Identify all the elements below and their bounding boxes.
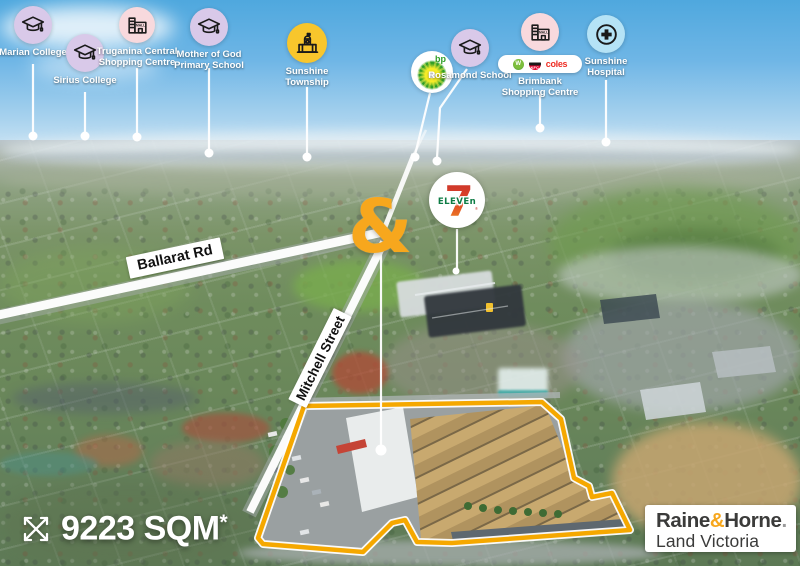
pin-label: Primary School <box>174 60 244 71</box>
eleven-text: ELEVEn <box>438 197 476 207</box>
pin-sunshine-hospital: SunshineHospital <box>546 15 666 78</box>
pin-label: Mother of God <box>174 49 244 60</box>
ampersand-marker: & <box>348 190 413 264</box>
aerial-map-stage: Ballarat Rd Mitchell Street Marian Colle… <box>0 0 800 566</box>
pin-label: Township <box>285 77 329 88</box>
leader-lines <box>33 64 606 447</box>
leader-bp <box>415 93 430 155</box>
agency-name: Raine&Horne. <box>656 510 796 532</box>
svg-text:MALL: MALL <box>136 23 145 27</box>
pin-label: Sunshine <box>285 66 329 77</box>
pin-label: Sunshine <box>585 56 628 67</box>
area-value: 9223 SQM* <box>61 509 227 548</box>
expand-arrows-icon <box>20 513 52 545</box>
town-hall-icon <box>294 30 321 57</box>
land-area-callout: 9223 SQM* <box>20 509 227 548</box>
mall-icon: MALL <box>125 13 150 38</box>
hospital-cross-icon <box>593 21 620 48</box>
brand-ampersand: & <box>710 509 724 532</box>
woolworths-logo: W <box>513 59 524 70</box>
registered-mark: ® <box>475 206 478 211</box>
dark-warehouse-ridges <box>415 283 508 318</box>
seven-eleven-badge: 7 ELEVEn ® <box>429 172 485 233</box>
pin-sunshine-township: SunshineTownship <box>247 23 367 88</box>
agency-logo: Raine&Horne. Land Victoria <box>645 505 796 552</box>
pin-label: Hospital <box>585 67 628 78</box>
industrial-rooftops <box>600 294 776 420</box>
graduation-cap-icon <box>196 14 222 40</box>
pin-label: Sirius College <box>53 75 116 86</box>
warehouse-roof <box>410 405 627 541</box>
pin-label: Shopping Centre <box>502 87 579 98</box>
agency-region: Land Victoria <box>656 532 796 551</box>
kfc-logo: KFC <box>529 58 541 70</box>
